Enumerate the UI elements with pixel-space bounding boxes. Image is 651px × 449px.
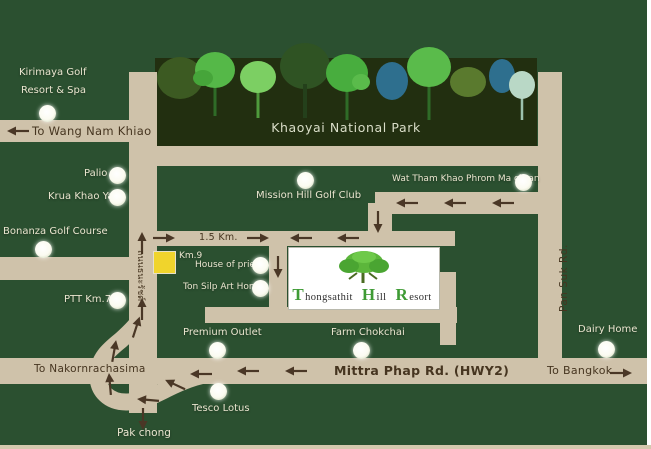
- road-wat-tham: [375, 192, 545, 214]
- marker-dairy-home: [598, 341, 615, 358]
- road-label-mittra-phap: Mittra Phap Rd. (HWY2): [334, 363, 509, 378]
- resort-name-word: Thongsathit: [291, 292, 358, 303]
- road-bonanza: [0, 257, 131, 280]
- label-krua-khao-yai: Krua Khao Yai: [48, 191, 116, 202]
- resort-direction-map: Khaoyai National Park: [0, 0, 651, 449]
- tree-icon: [450, 67, 486, 97]
- tree-icon: [376, 62, 408, 100]
- tree-icon: [407, 47, 451, 120]
- label-palio: Palio: [84, 168, 107, 179]
- label-premium-outlet: Premium Outlet: [183, 327, 262, 338]
- label-dairy-home: Dairy Home: [578, 324, 637, 335]
- road-1-5km: [129, 231, 455, 246]
- label-farm-chokchai: Farm Chokchai: [331, 327, 405, 338]
- road-label-pak-chong: Pak chong: [117, 428, 171, 440]
- tree-icon: [509, 71, 535, 120]
- label-tesco-lotus: Tesco Lotus: [192, 403, 250, 414]
- marker-farm-chokchai: [353, 342, 370, 359]
- road-label-to-bangkok: To Bangkok: [547, 364, 612, 377]
- marker-ptt: [109, 292, 126, 309]
- marker-premium-outlet: [209, 342, 226, 359]
- road-label-pan-suk: Pan Suk Rd.: [558, 244, 570, 312]
- road-resort-entrance: [269, 245, 287, 309]
- road-label-to-nakornrachasima: To Nakornrachasima: [34, 363, 146, 375]
- road-resort-right-stub: [440, 272, 456, 345]
- resort-name-word: Hill: [361, 292, 392, 303]
- marker-tesco-lotus: [210, 383, 227, 400]
- marker-palio: [109, 167, 126, 184]
- road-label-wang-nam-khiao: To Wang Nam Khiao: [32, 124, 151, 138]
- marker-krua-khao-yai: [109, 189, 126, 206]
- tree-icon: [240, 61, 276, 118]
- tree-icon: [193, 52, 235, 116]
- road-label-thanarat: ถนนธนะรัชต์: [134, 250, 148, 301]
- marker-kirimaya: [39, 105, 56, 122]
- marker-ton-silp: [252, 280, 269, 297]
- label-kirimaya-line2: Resort & Spa: [21, 85, 86, 96]
- label-ptt: PTT Km.7: [64, 294, 111, 305]
- marker-wat-tham: [515, 174, 532, 191]
- park-title: Khaoyai National Park: [155, 120, 537, 135]
- km9-marker-square: [153, 251, 176, 274]
- resort-name: Thongsathit Hill Resort: [291, 285, 436, 309]
- resort-tree-logo-icon: [329, 249, 399, 285]
- road-top-horizontal: [129, 146, 562, 166]
- resort-name-word: Resort: [395, 292, 437, 303]
- marker-house-of-priest: [252, 257, 269, 274]
- label-bonanza: Bonanza Golf Course: [3, 226, 108, 237]
- resort-sign: Thongsathit Hill Resort: [288, 247, 440, 310]
- marker-bonanza: [35, 241, 52, 258]
- marker-mission-hill: [297, 172, 314, 189]
- tree-icon: [280, 43, 330, 118]
- label-mission-hill: Mission Hill Golf Club: [256, 190, 361, 201]
- tree-icon: [326, 54, 370, 120]
- label-kirimaya-line1: Kirimaya Golf: [19, 67, 87, 78]
- road-label-distance: 1.5 Km.: [199, 232, 238, 243]
- road-pan-suk-vertical: [538, 72, 562, 384]
- page-edge-bottom: [0, 445, 651, 449]
- page-edge-right: [647, 0, 651, 449]
